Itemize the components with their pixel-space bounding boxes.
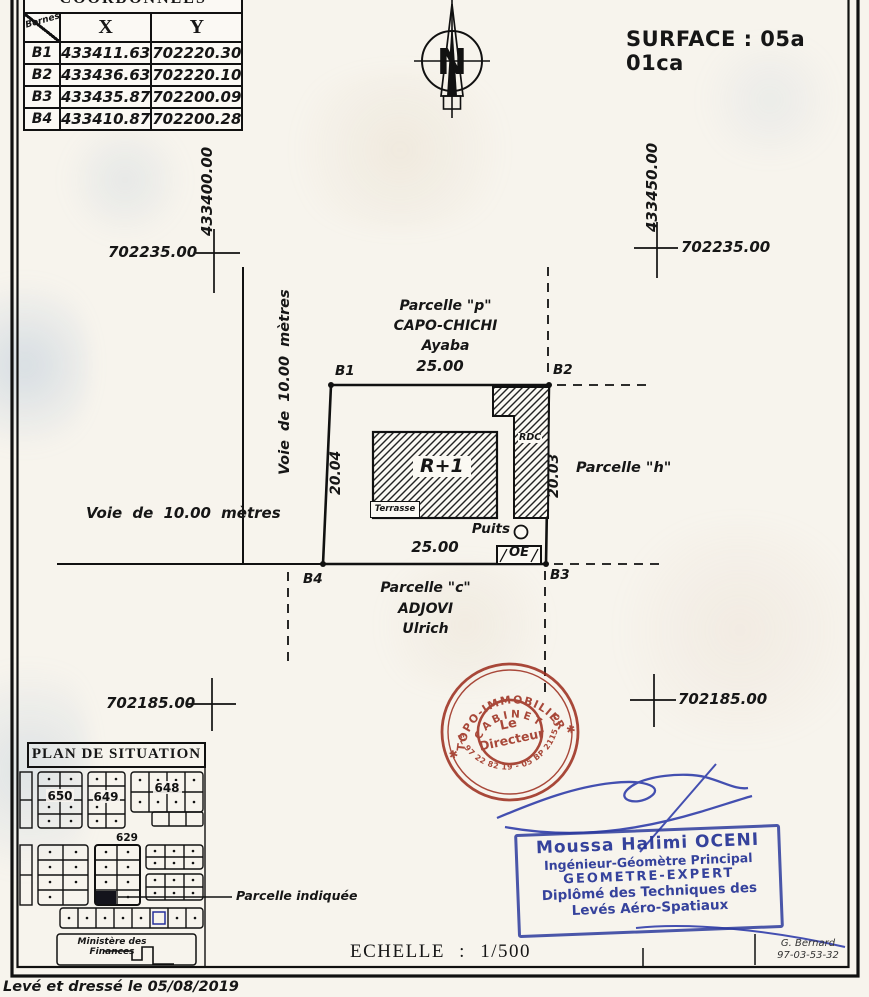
table-row: B2 433436.63 702220.10: [24, 64, 242, 86]
grid-cross-lower-left: [188, 678, 236, 731]
parcel-north-line1: Parcelle "p": [358, 296, 533, 316]
grid-cross-upper-left: [196, 229, 240, 293]
drafter-code: 97-03-53-32: [760, 950, 856, 962]
survey-plan-page: N: [0, 0, 869, 997]
corner-b2-label: B2: [553, 363, 573, 378]
oe-label: OE: [500, 546, 538, 560]
parcel-east-name: Parcelle "h": [576, 461, 671, 477]
situation-plan-title: PLAN DE SITUATION: [30, 746, 203, 763]
block-650-number: 650: [47, 789, 72, 803]
road-south-label: Voie de 10.00 mètres: [86, 505, 281, 522]
borne-x: 433410.87: [60, 108, 151, 130]
corner-b1-label: B1: [335, 364, 355, 379]
parcel-south-name: Parcelle "c" ADJOVI Ulrich: [338, 578, 513, 640]
compass: N: [414, 0, 490, 118]
bornes-corner-cell: Bornes: [24, 13, 60, 42]
scale-label: ECHELLE : 1/500: [350, 941, 531, 963]
compass-letter: N: [437, 42, 467, 83]
grid-easting-left-label: 433400.00: [199, 151, 216, 236]
borne-y: 702220.30: [151, 42, 242, 64]
rdc-label: RDC: [518, 433, 542, 443]
surface-label: SURFACE : 05a 01ca: [626, 27, 869, 75]
borne-id: B1: [24, 42, 60, 64]
drafter-credit: G. Bernard 97-03-53-32: [760, 938, 856, 962]
dimension-top-label: 25.00: [408, 358, 472, 375]
parcel-south-line1: Parcelle "c": [338, 578, 513, 599]
borne-x: 433436.63: [60, 64, 151, 86]
borne-x: 433411.63: [60, 42, 151, 64]
block-629-number: 629: [116, 832, 138, 844]
column-header-y: Y: [151, 13, 242, 42]
borne-y: 702200.09: [151, 86, 242, 108]
grid-northing-upper-left-label: 702235.00: [108, 244, 194, 261]
grid-easting-right-label: 433450.00: [644, 147, 661, 232]
parcel-north-name: Parcelle "p" CAPO-CHICHI Ayaba: [358, 296, 533, 356]
coordinates-table: COORDONNEES Bornes X Y B1 433411.63 7022…: [23, 0, 243, 131]
parcel-south-line3: Ulrich: [338, 619, 513, 640]
dimension-bottom-label: 25.00: [403, 539, 467, 556]
stamp-star-right: ✱: [565, 722, 577, 737]
block-649-number: 649: [93, 790, 118, 804]
column-header-x: X: [60, 13, 151, 42]
table-row: B1 433411.63 702220.30: [24, 42, 242, 64]
borne-id: B2: [24, 64, 60, 86]
borne-id: B4: [24, 108, 60, 130]
grid-northing-lower-left-label: 702185.00: [106, 695, 192, 712]
ministry-label-line2: Finances: [57, 947, 167, 957]
borne-id: B3: [24, 86, 60, 108]
well-label: Puits: [466, 522, 510, 537]
parcel-north-line3: Ayaba: [358, 336, 533, 356]
survey-date-note: Levé et dressé le 05/08/2019: [3, 979, 239, 995]
corner-b4-label: B4: [303, 572, 323, 587]
table-row: B4 433410.87 702200.28: [24, 108, 242, 130]
block-648-number: 648: [154, 781, 179, 795]
grid-cross-lower-right: [630, 674, 676, 727]
borne-y: 702200.28: [151, 108, 242, 130]
bornes-corner-label: Bornes: [24, 11, 61, 30]
grid-northing-upper-right-label: 702235.00: [681, 239, 770, 256]
table-row: B3 433435.87 702200.09: [24, 86, 242, 108]
parcel-north-line2: CAPO-CHICHI: [358, 316, 533, 336]
dimension-right-label: 20.03: [547, 450, 562, 502]
building-r1-label: R+1: [413, 456, 471, 477]
dimension-left-label: 20.04: [329, 447, 344, 499]
borne-y: 702220.10: [151, 64, 242, 86]
road-west-label: Voie de 10.00 mètres: [278, 288, 294, 476]
round-stamp: "TOPO-IMMOBILIER" CABINET TEL 97 22 82 1…: [437, 659, 583, 805]
grid-northing-lower-right-label: 702185.00: [678, 691, 767, 708]
drafter-name: G. Bernard: [760, 938, 856, 950]
rdc-structure: [493, 387, 549, 518]
ministry-label: Ministère des Finances: [57, 937, 167, 957]
well-circle: [515, 526, 528, 539]
parcel-south-line2: ADJOVI: [338, 599, 513, 620]
ministry-label-line1: Ministère des: [57, 937, 167, 947]
situation-plan-map: 650 649 648 629: [20, 743, 232, 966]
surveyor-stamp: Moussa Halimi OCENI Ingénieur-Géomètre P…: [514, 824, 784, 938]
indicated-parcel-label: Parcelle indiquée: [236, 889, 357, 903]
indicated-parcel-cell: [96, 891, 116, 904]
terrace-label: Terrasse: [370, 501, 420, 518]
footer-separators: [643, 934, 755, 966]
corner-b3-label: B3: [550, 568, 570, 583]
borne-x: 433435.87: [60, 86, 151, 108]
